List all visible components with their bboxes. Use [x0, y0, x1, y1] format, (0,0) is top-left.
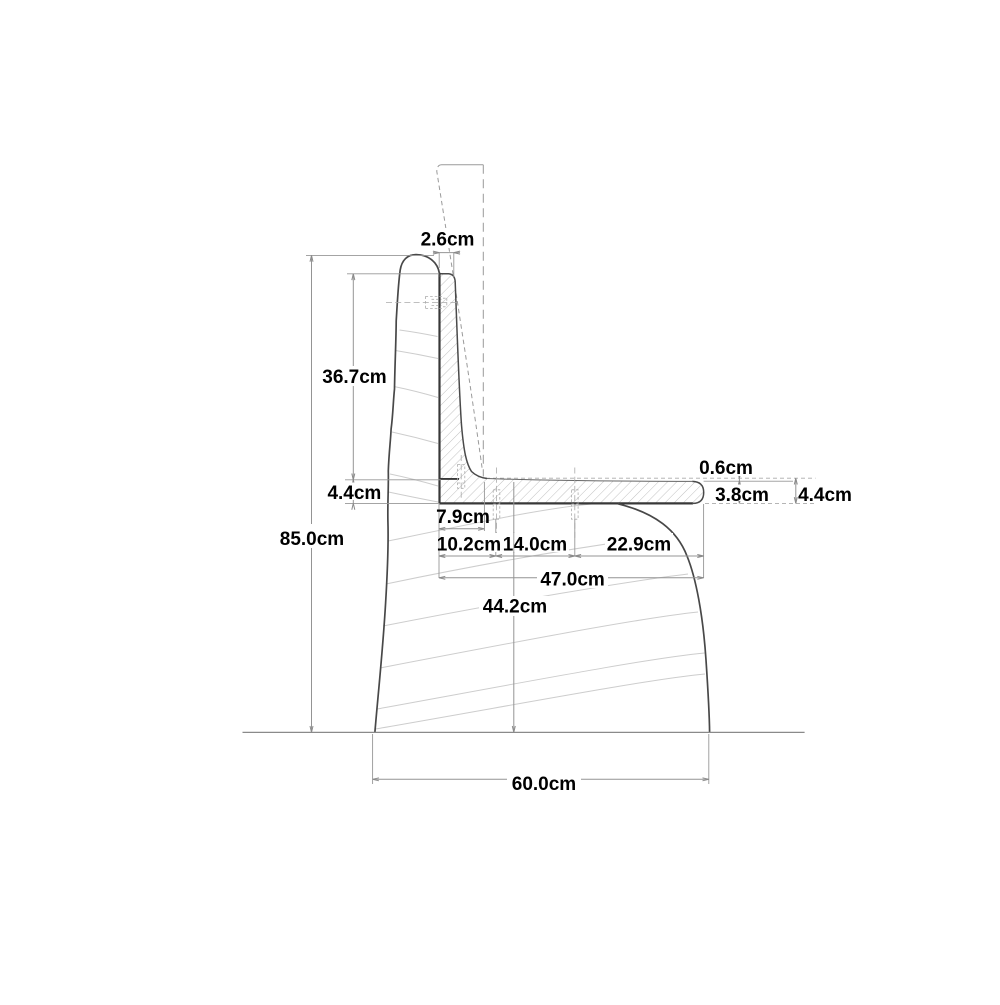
svg-text:47.0cm: 47.0cm	[540, 570, 604, 591]
svg-text:60.0cm: 60.0cm	[512, 774, 576, 795]
svg-text:36.7cm: 36.7cm	[322, 367, 386, 388]
svg-text:7.9cm: 7.9cm	[436, 507, 490, 528]
svg-text:0.6cm: 0.6cm	[699, 458, 753, 479]
svg-text:4.4cm: 4.4cm	[327, 483, 381, 504]
svg-text:2.6cm: 2.6cm	[421, 230, 475, 251]
svg-text:22.9cm: 22.9cm	[607, 535, 671, 556]
svg-text:85.0cm: 85.0cm	[280, 529, 344, 550]
svg-text:14.0cm: 14.0cm	[503, 535, 567, 556]
svg-text:44.2cm: 44.2cm	[483, 597, 547, 618]
svg-text:10.2cm: 10.2cm	[437, 535, 501, 556]
svg-text:3.8cm: 3.8cm	[715, 485, 769, 506]
svg-text:4.4cm: 4.4cm	[798, 485, 852, 506]
